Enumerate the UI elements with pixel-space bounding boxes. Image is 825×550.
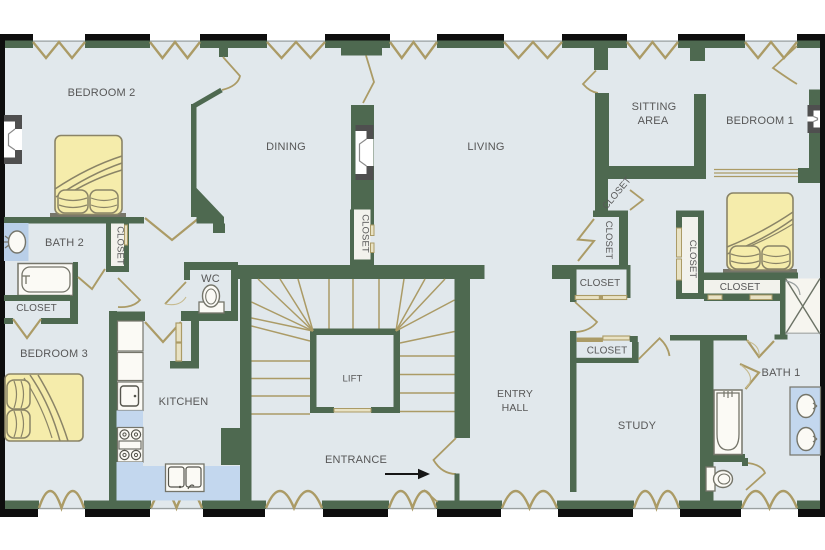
svg-text:CLOSET: CLOSET — [360, 214, 371, 253]
svg-text:SITTING: SITTING — [632, 101, 677, 113]
svg-text:CLOSET: CLOSET — [603, 221, 614, 260]
svg-text:STUDY: STUDY — [618, 420, 657, 432]
svg-text:LIVING: LIVING — [467, 141, 504, 153]
svg-text:KITCHEN: KITCHEN — [159, 396, 209, 408]
svg-text:BATH 1: BATH 1 — [762, 367, 801, 379]
svg-text:LIFT: LIFT — [343, 374, 363, 385]
svg-text:CLOSET: CLOSET — [587, 346, 628, 357]
svg-text:BEDROOM 3: BEDROOM 3 — [20, 348, 88, 360]
svg-text:ENTRY: ENTRY — [497, 388, 533, 400]
svg-text:AREA: AREA — [638, 115, 669, 127]
svg-text:HALL: HALL — [502, 402, 529, 414]
svg-text:CLOSET: CLOSET — [16, 303, 57, 314]
svg-text:DINING: DINING — [266, 141, 306, 153]
svg-text:BEDROOM 2: BEDROOM 2 — [68, 87, 136, 99]
svg-text:BEDROOM 1: BEDROOM 1 — [726, 115, 794, 127]
svg-text:BATH 2: BATH 2 — [45, 237, 84, 249]
svg-text:CLOSET: CLOSET — [687, 240, 698, 279]
svg-text:WC: WC — [201, 273, 220, 285]
svg-text:CLOSET: CLOSET — [115, 226, 126, 265]
svg-text:CLOSET: CLOSET — [720, 282, 761, 293]
svg-text:CLOSET: CLOSET — [580, 278, 621, 289]
svg-text:ENTRANCE: ENTRANCE — [325, 454, 387, 466]
